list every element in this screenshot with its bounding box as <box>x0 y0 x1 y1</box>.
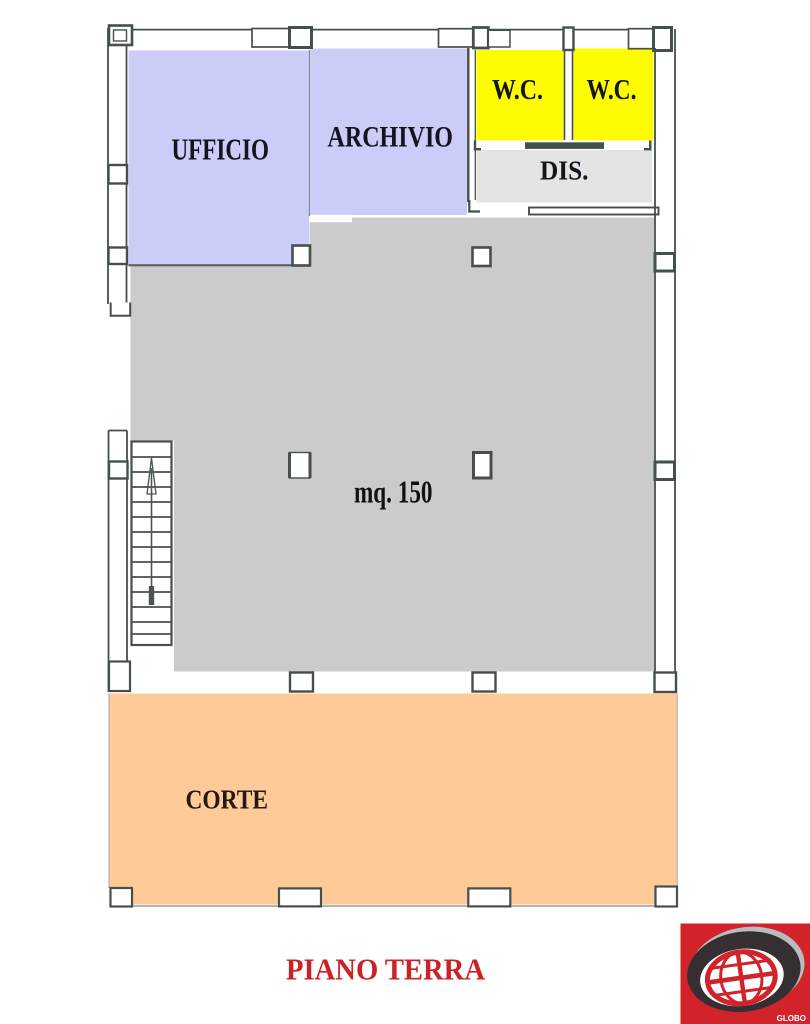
svg-text:DIS.: DIS. <box>540 155 589 186</box>
svg-text:ARCHIVIO: ARCHIVIO <box>328 121 454 154</box>
svg-text:UFFICIO: UFFICIO <box>172 132 270 167</box>
svg-text:W.C.: W.C. <box>587 74 637 106</box>
svg-text:PIANO TERRA: PIANO TERRA <box>286 952 486 987</box>
svg-text:CORTE: CORTE <box>186 785 269 815</box>
svg-text:W.C.: W.C. <box>492 74 543 106</box>
svg-text:GLOBO: GLOBO <box>777 1014 806 1023</box>
svg-text:mq. 150: mq. 150 <box>354 474 433 510</box>
